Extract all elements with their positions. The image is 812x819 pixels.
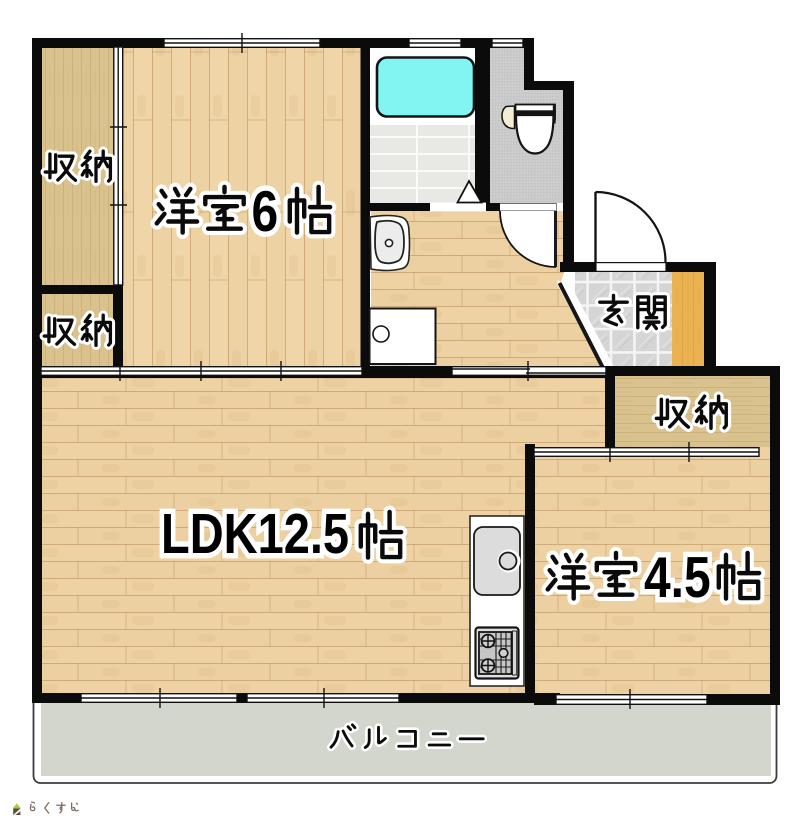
svg-text:LDK12.5: LDK12.5 (161, 503, 349, 566)
svg-text:4.5: 4.5 (644, 546, 711, 610)
svg-text:6: 6 (252, 180, 279, 244)
